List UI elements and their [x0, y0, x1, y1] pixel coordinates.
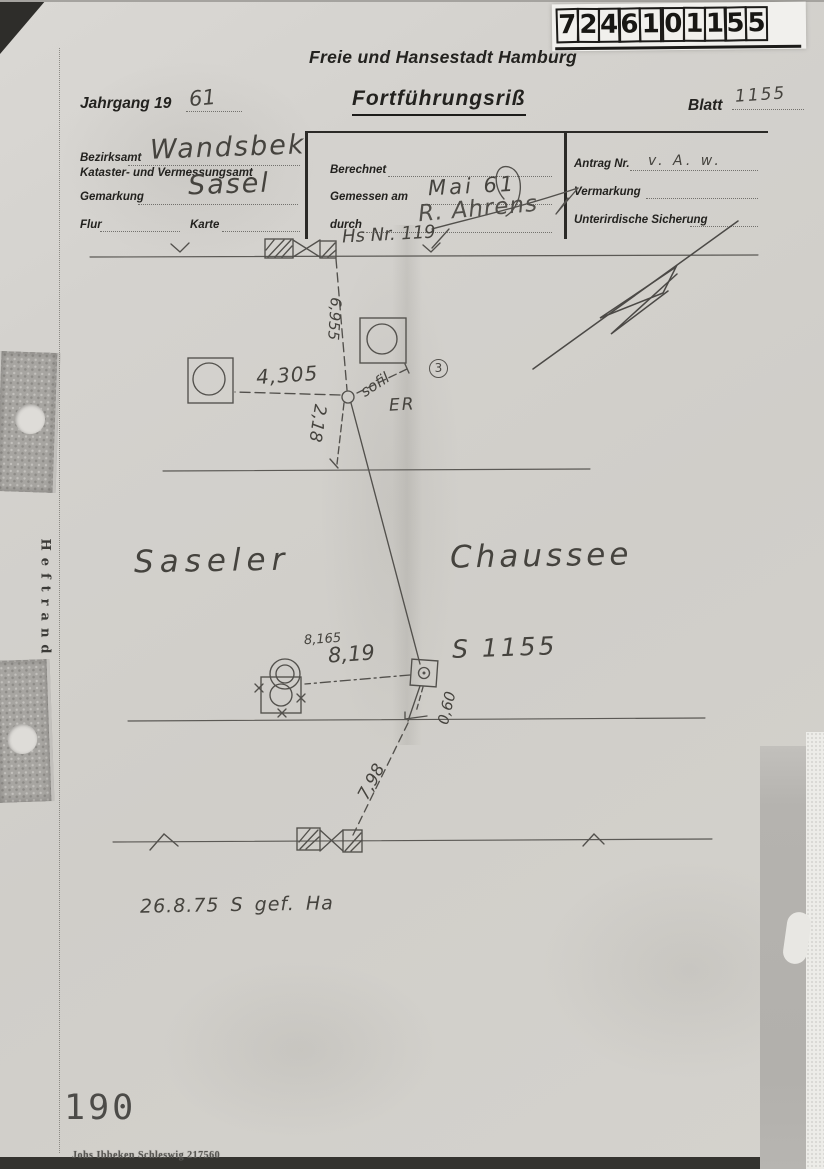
gemessen-am-label: Gemessen am — [330, 191, 408, 203]
gemarkung-value: Sasel — [187, 168, 270, 202]
measurement-060: 0,60 — [434, 690, 460, 727]
revision-date-note: 26.8.75 S gef. Ha — [140, 892, 334, 917]
manhole-symbol-left — [188, 358, 233, 403]
blatt-value: 1155 — [734, 83, 787, 107]
blatt-label: Blatt — [688, 97, 722, 115]
stamp-digit: 5 — [724, 6, 748, 42]
flur-label: Flur — [80, 219, 102, 231]
heftrand-label: Heftrand — [38, 533, 53, 667]
shaft-symbol-double-ring — [255, 659, 305, 717]
measurement-819: 8,19 — [327, 640, 375, 667]
vermarkung-leader — [646, 198, 758, 199]
point-label-s1155: S 1155 — [452, 631, 558, 664]
building-line-bottom — [113, 828, 712, 852]
punch-hole — [15, 404, 46, 435]
paper-stain — [160, 960, 440, 1140]
jahrgang-value: 61 — [188, 85, 217, 111]
file-number-cells: 7 2 4 6 1 0 1 1 5 5 — [556, 6, 766, 43]
binding-margin-line — [59, 48, 60, 1153]
stamp-digit: 0 — [662, 7, 685, 42]
circled-number: 3 — [429, 359, 448, 378]
measurement-4305: 4,305 — [255, 361, 319, 389]
file-number-stamp: 7 2 4 6 1 0 1 1 5 5 — [552, 2, 806, 52]
stamp-digit: 2 — [577, 8, 600, 43]
stamp-underline — [555, 45, 801, 51]
blatt-leader — [732, 109, 804, 110]
document-city-title: Freie und Hansestadt Hamburg — [309, 47, 577, 68]
bezirksamt-value: Wandsbek — [150, 129, 306, 165]
scan-top-edge — [0, 0, 824, 2]
gemarkung-label: Gemarkung — [80, 191, 144, 203]
paper-fold-line — [392, 225, 422, 745]
scanned-survey-document: Heftrand 7 2 4 6 1 0 1 1 5 5 Freie und H… — [0, 0, 824, 1169]
printer-imprint: Johs Ibbeken Schleswig 217560 — [72, 1150, 220, 1161]
street-name-left: Saseler — [134, 542, 291, 581]
page-title: Fortführungsriß — [352, 87, 526, 116]
measurement-6955: 6,955 — [324, 297, 345, 341]
antrag-nr-value: v. A. w. — [648, 153, 722, 169]
north-arrow — [533, 221, 738, 369]
gemarkung-leader — [138, 204, 298, 205]
bezirksamt-label: Bezirksamt — [80, 152, 141, 164]
stamp-digit: 1 — [639, 7, 662, 42]
form-top-rule — [306, 131, 768, 133]
berechnet-label: Berechnet — [330, 164, 386, 176]
antrag-nr-leader — [630, 170, 758, 171]
street-name-right: Chaussee — [450, 536, 633, 575]
backing-strip — [806, 732, 824, 1169]
flur-leader — [100, 231, 180, 232]
form-divider-2 — [564, 131, 567, 239]
karte-leader — [222, 231, 300, 232]
sicherung-label: Unterirdische Sicherung — [574, 214, 708, 226]
measurement-798: 7,98 — [354, 761, 389, 804]
jahrgang-leader — [186, 111, 242, 112]
stamp-digit: 1 — [683, 7, 706, 42]
antrag-nr-label: Antrag Nr. — [574, 158, 630, 170]
page-number: 190 — [64, 1088, 136, 1128]
stamp-digit: 7 — [556, 8, 580, 44]
stamp-digit: 5 — [745, 6, 768, 41]
hole-reinforcement-patch — [0, 351, 60, 493]
sicherung-leader — [690, 226, 758, 227]
scan-corner-shadow — [0, 0, 46, 54]
stamp-digit: 6 — [618, 7, 642, 43]
hole-reinforcement-patch — [0, 659, 54, 803]
vermarkung-label: Vermarkung — [574, 186, 641, 198]
karte-label: Karte — [190, 219, 219, 231]
er-note: ER — [388, 394, 416, 415]
punch-hole — [7, 724, 38, 755]
jahrgang-label: Jahrgang 19 — [80, 95, 171, 113]
